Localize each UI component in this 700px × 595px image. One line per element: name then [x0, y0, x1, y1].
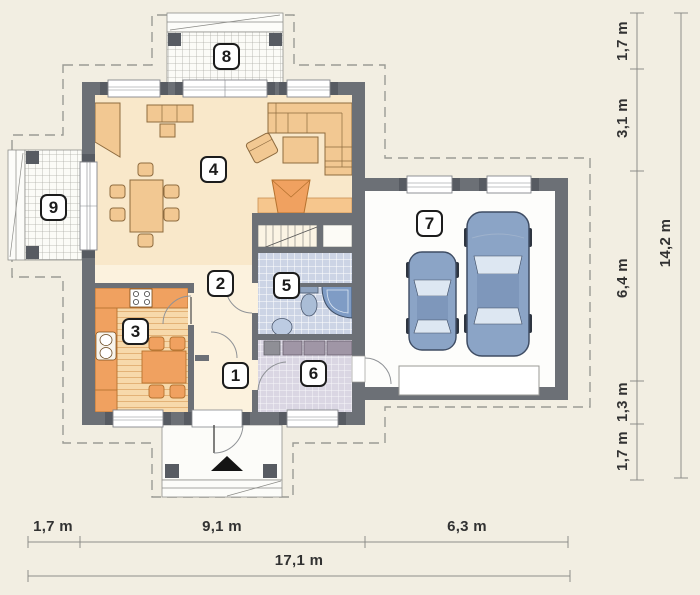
- room-number: 4: [209, 161, 218, 178]
- dining-chair: [164, 208, 179, 221]
- window: [108, 80, 160, 97]
- utility-appliances: [264, 341, 352, 355]
- room-label-terrace-rear: 8: [213, 43, 240, 70]
- dining-chair: [110, 185, 125, 198]
- window: [287, 80, 330, 97]
- car-large: [464, 212, 532, 356]
- car-small: [406, 252, 459, 350]
- kitchen-table: [142, 351, 186, 383]
- dim-label-bottom-3: 6,3 m: [435, 517, 499, 535]
- room-number: 6: [309, 365, 318, 382]
- appliance: [264, 341, 280, 355]
- garage-window: [407, 176, 452, 193]
- kitchen-chair: [149, 337, 164, 350]
- room-number: 1: [231, 367, 240, 384]
- bathroom-window: [287, 410, 338, 427]
- terrace-post: [269, 33, 282, 46]
- dim-label-right-2: 3,1 m: [613, 86, 631, 150]
- staircase: [258, 225, 317, 250]
- floor-plan-drawing: [0, 0, 700, 595]
- tv-sideboard: [147, 105, 193, 122]
- toilet: [301, 294, 317, 316]
- kitchen-chair: [170, 385, 185, 398]
- dining-table: [130, 180, 163, 232]
- dim-label-bottom-2: 9,1 m: [190, 517, 254, 535]
- room-number: 8: [222, 48, 231, 65]
- washbasin: [272, 319, 292, 336]
- fridge: [95, 390, 117, 412]
- terrace-post: [26, 246, 39, 259]
- room-label-hall: 2: [207, 270, 234, 297]
- garage-wall: [555, 178, 568, 400]
- toilet-tank: [300, 286, 318, 293]
- room-number: 3: [131, 323, 140, 340]
- porch-post: [263, 464, 277, 478]
- dryer: [304, 341, 325, 355]
- dining-chair: [138, 163, 153, 176]
- dim-label-bottom-1: 1,7 m: [21, 517, 85, 535]
- kitchen-chair: [149, 385, 164, 398]
- dining-chair: [138, 234, 153, 247]
- room-label-utility-room: 6: [300, 360, 327, 387]
- dim-label-bottom-total: 17,1 m: [267, 551, 331, 569]
- room-label-entry-hall: 1: [222, 362, 249, 389]
- room-label-living-room: 4: [200, 156, 227, 183]
- kitchen-chair: [170, 337, 185, 350]
- kitchen: [95, 288, 188, 412]
- stool: [160, 124, 175, 137]
- porch-steps: [162, 480, 282, 497]
- dim-label-right-3: 6,4 m: [613, 246, 631, 310]
- washer: [283, 341, 302, 355]
- dining-chair: [110, 208, 125, 221]
- dim-label-right-1: 1,7 m: [613, 9, 631, 73]
- entry-door-opening: [192, 410, 242, 427]
- room-label-terrace-side: 9: [40, 194, 67, 221]
- terrace-post: [26, 151, 39, 164]
- room-label-garage: 7: [416, 210, 443, 237]
- room-number: 9: [49, 199, 58, 216]
- cabinet: [327, 341, 352, 355]
- floor-plan-canvas: 1 2 3 4 5 6 7 8 9 1,7 m 3,1 m 6,4 m 1,3 …: [0, 0, 700, 595]
- dim-label-right-5: 1,7 m: [613, 419, 631, 483]
- dim-label-right-total: 14,2 m: [656, 211, 674, 275]
- dining-chair: [164, 185, 179, 198]
- room-label-bathroom: 5: [273, 272, 300, 299]
- entrance-porch: [162, 425, 282, 497]
- garage-door: [399, 366, 539, 395]
- kitchen-window: [113, 410, 163, 427]
- terrace-post: [168, 33, 181, 46]
- garage-window: [487, 176, 531, 193]
- coffee-table: [283, 137, 318, 163]
- garage-side-door: [352, 356, 365, 382]
- closet: [323, 225, 352, 247]
- room-number: 7: [425, 215, 434, 232]
- room-number: 5: [282, 277, 291, 294]
- room-label-kitchen: 3: [122, 318, 149, 345]
- room-number: 2: [216, 275, 225, 292]
- porch-post: [165, 464, 179, 478]
